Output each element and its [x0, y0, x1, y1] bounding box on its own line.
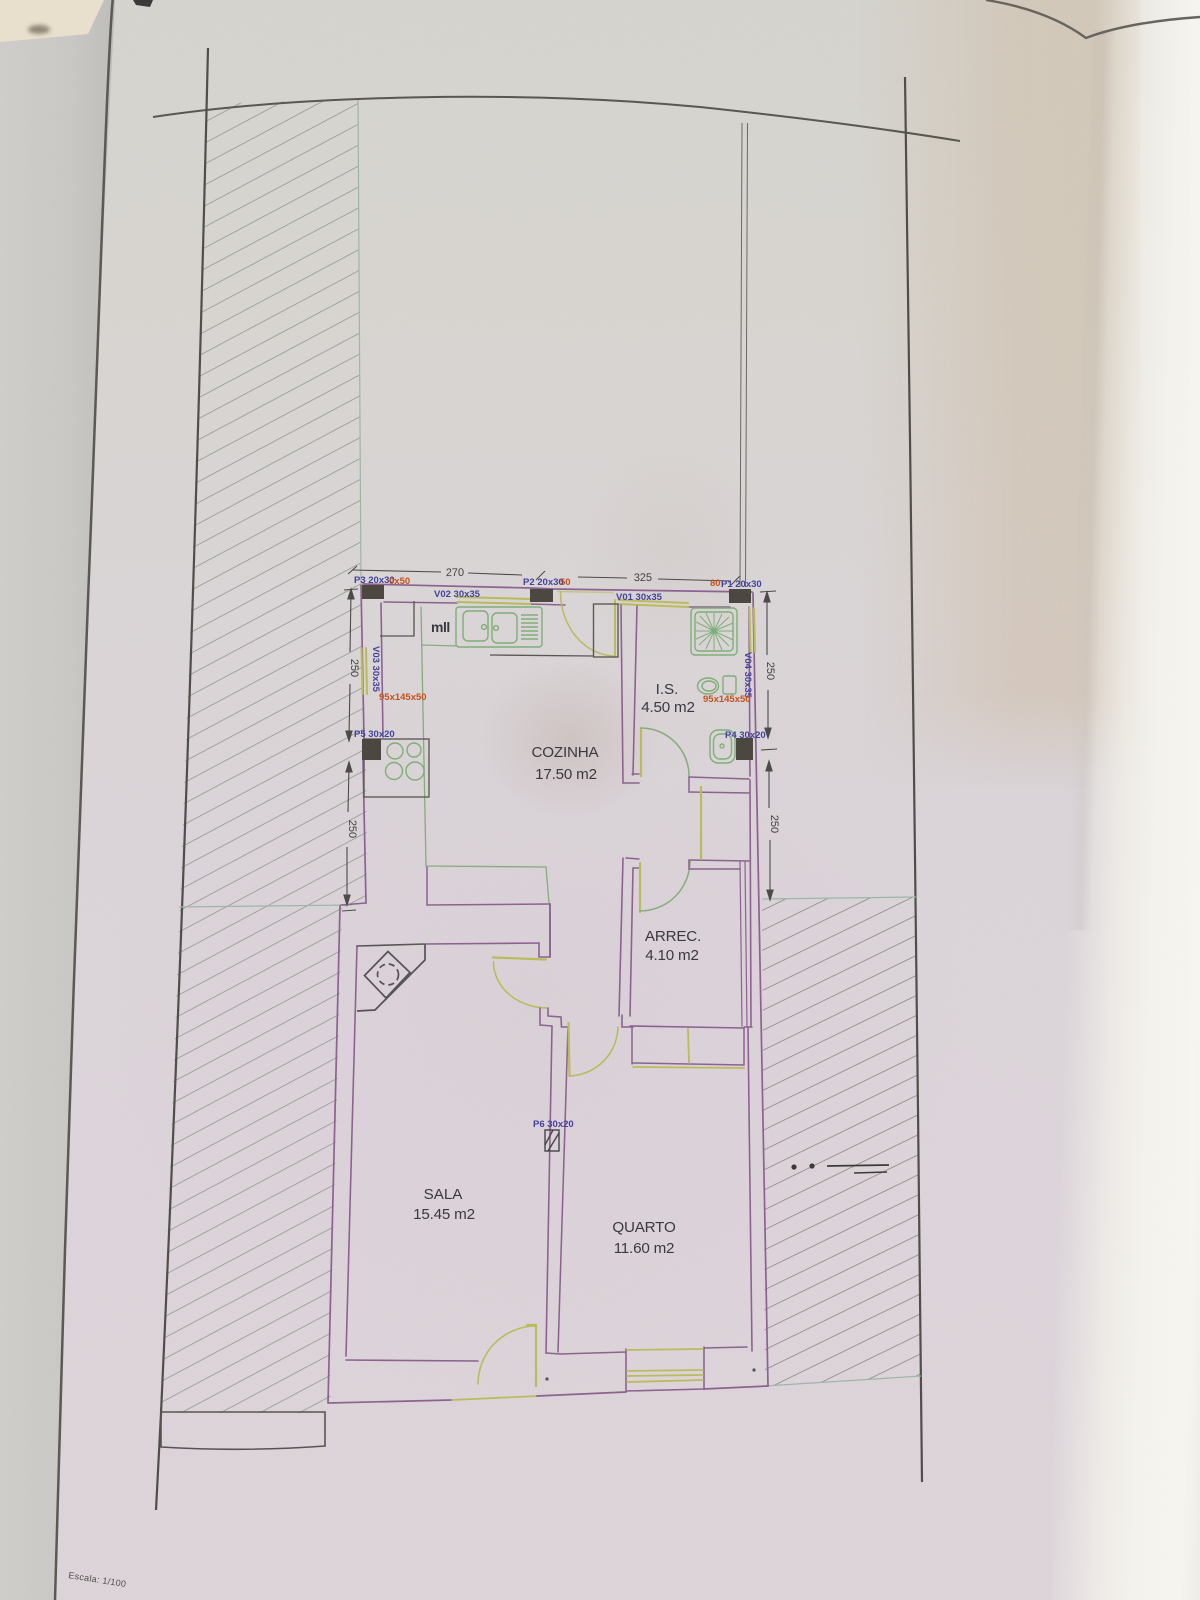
svg-text:P5 30x20: P5 30x20 — [354, 729, 395, 740]
svg-text:0x50: 0x50 — [389, 576, 410, 587]
svg-text:325: 325 — [634, 572, 653, 584]
svg-text:ARREC.: ARREC. — [645, 928, 701, 945]
svg-text:250: 250 — [348, 659, 360, 677]
svg-text:I.S.: I.S. — [656, 681, 679, 698]
svg-text:QUARTO: QUARTO — [612, 1219, 676, 1236]
svg-text:V01 30x35: V01 30x35 — [616, 592, 663, 603]
svg-text:V03 30x35: V03 30x35 — [370, 646, 381, 693]
svg-text:COZINHA: COZINHA — [532, 744, 600, 761]
svg-text:SALA: SALA — [424, 1186, 464, 1203]
svg-text:15.45 m2: 15.45 m2 — [413, 1206, 475, 1223]
svg-text:P6 30x20: P6 30x20 — [533, 1119, 574, 1130]
svg-text:4.10 m2: 4.10 m2 — [645, 947, 698, 964]
svg-text:50: 50 — [560, 577, 571, 588]
svg-text:P1 20x30: P1 20x30 — [721, 579, 762, 590]
svg-text:250: 250 — [764, 662, 776, 680]
svg-text:V02 30x35: V02 30x35 — [434, 589, 481, 600]
svg-text:250: 250 — [768, 815, 780, 833]
svg-text:250: 250 — [346, 820, 358, 838]
svg-text:11.60 m2: 11.60 m2 — [614, 1240, 675, 1257]
svg-text:95x145x50: 95x145x50 — [703, 694, 751, 705]
svg-text:80: 80 — [710, 578, 721, 589]
svg-text:mll: mll — [431, 619, 450, 635]
svg-text:V04 30x35: V04 30x35 — [742, 652, 753, 699]
svg-text:P2 20x30: P2 20x30 — [523, 577, 564, 588]
svg-text:4.50 m2: 4.50 m2 — [641, 699, 694, 716]
svg-text:95x145x50: 95x145x50 — [379, 692, 427, 703]
svg-text:P4 30x20: P4 30x20 — [725, 730, 766, 741]
svg-text:270: 270 — [446, 567, 465, 579]
svg-text:17.50 m2: 17.50 m2 — [535, 766, 597, 783]
